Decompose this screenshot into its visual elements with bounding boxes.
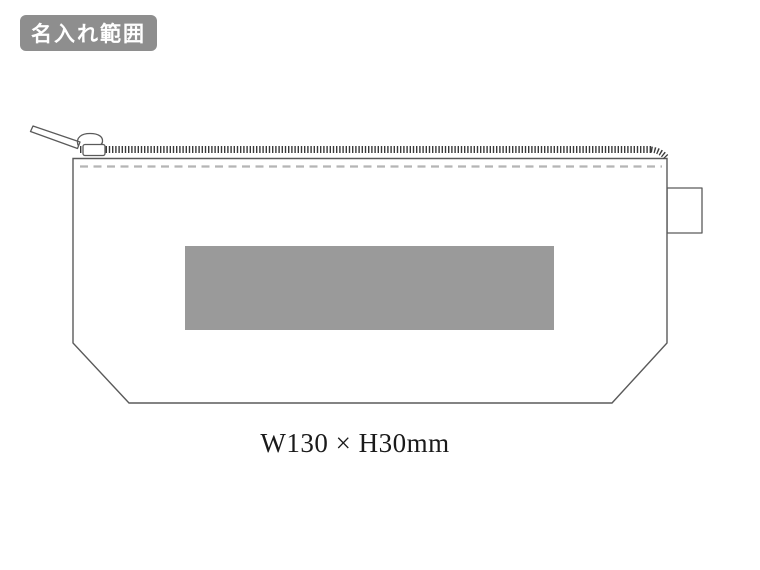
zipper-pull-strap bbox=[31, 126, 81, 149]
side-tab bbox=[667, 188, 702, 233]
print-area-size-label: W130 × H30mm bbox=[205, 428, 505, 459]
print-area-rect bbox=[185, 246, 554, 330]
zipper-teeth-end-curve bbox=[651, 150, 666, 158]
zipper-slider bbox=[83, 145, 105, 156]
imprint-area-diagram: 名入れ範囲 W130 × H30mm bbox=[0, 0, 760, 570]
pouch-diagram bbox=[0, 0, 760, 570]
